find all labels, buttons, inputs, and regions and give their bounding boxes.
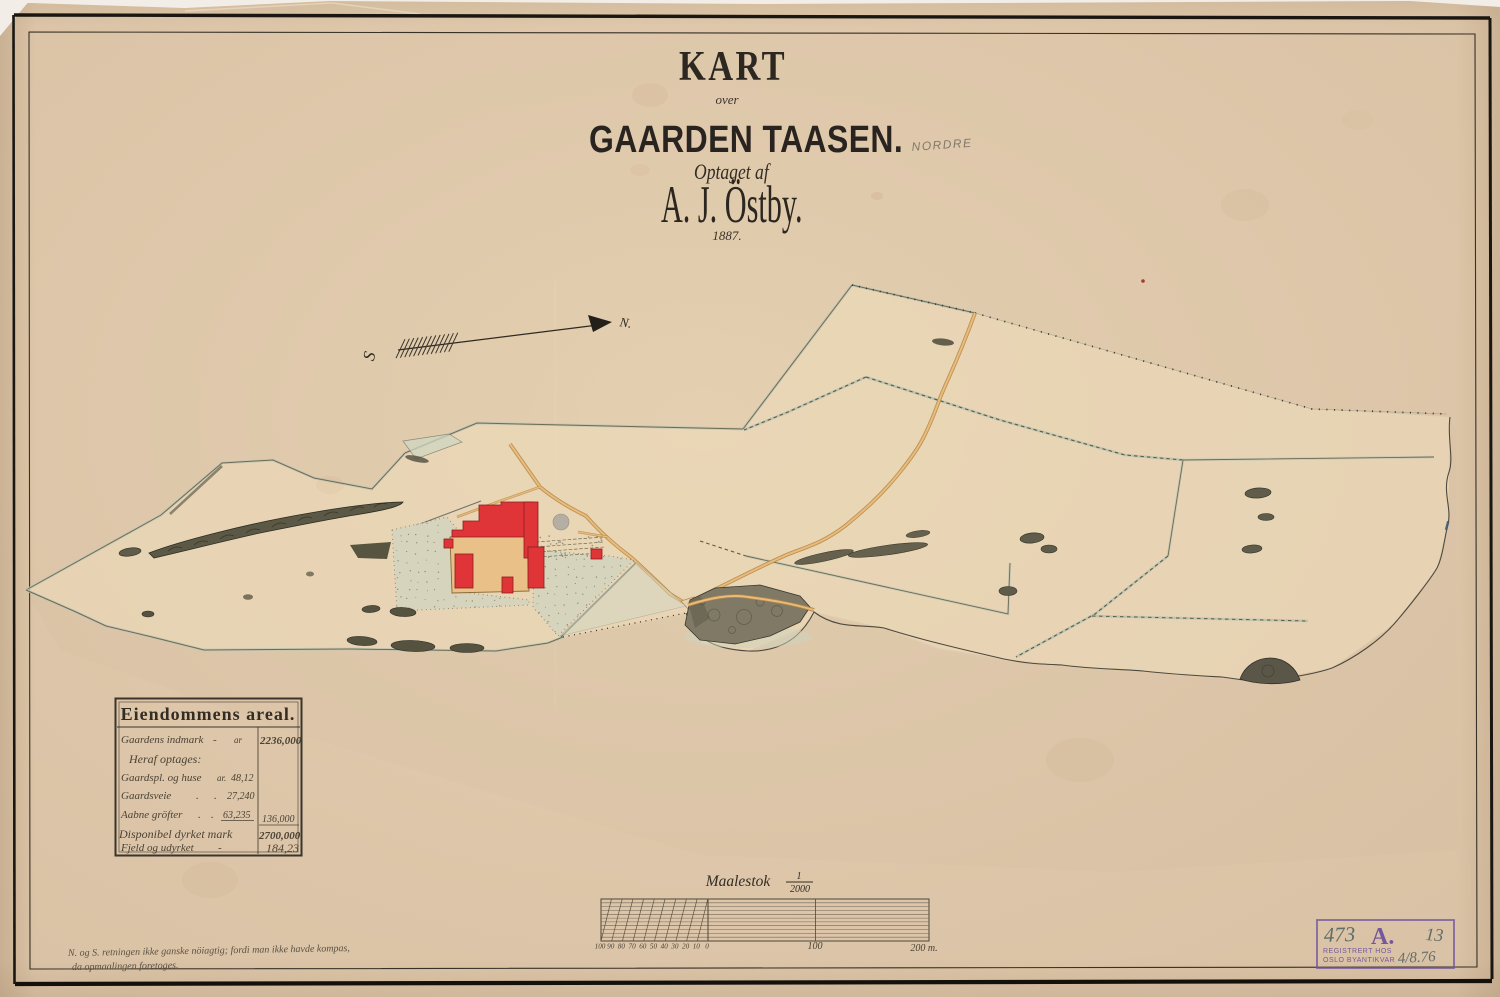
svg-text:over: over <box>715 92 739 107</box>
svg-text:1887.: 1887. <box>712 228 741 243</box>
svg-text:KART: KART <box>679 44 787 90</box>
svg-text:90: 90 <box>607 943 615 951</box>
svg-text:A. J. Östby.: A. J. Östby. <box>661 177 803 235</box>
svg-text:1: 1 <box>797 871 802 882</box>
svg-text:2000: 2000 <box>790 884 810 895</box>
svg-text:0: 0 <box>705 943 709 951</box>
svg-text:10: 10 <box>693 943 701 951</box>
svg-text:200 m.: 200 m. <box>910 943 937 954</box>
svg-text:27,240: 27,240 <box>227 791 255 802</box>
svg-text:Gaardsveie: Gaardsveie <box>121 790 171 802</box>
svg-text:Disponibel dyrket mark: Disponibel dyrket mark <box>118 827 233 841</box>
svg-text:ar.: ar. <box>217 773 226 783</box>
svg-text:.: . <box>211 809 214 821</box>
svg-text:184,23: 184,23 <box>266 841 299 855</box>
svg-text:40: 40 <box>661 943 669 951</box>
svg-text:20: 20 <box>682 943 690 951</box>
svg-text:Heraf optages:: Heraf optages: <box>128 752 201 766</box>
svg-text:A.: A. <box>1371 924 1394 950</box>
svg-text:Gaardspl. og huse: Gaardspl. og huse <box>121 772 202 784</box>
svg-text:Maalestok: Maalestok <box>705 873 772 890</box>
svg-text:Gaardens indmark: Gaardens indmark <box>121 734 205 746</box>
svg-text:63,235: 63,235 <box>223 810 251 821</box>
svg-text:Eiendommens areal.: Eiendommens areal. <box>121 704 296 724</box>
svg-text:136,000: 136,000 <box>262 814 295 825</box>
svg-text:100: 100 <box>808 941 823 952</box>
svg-text:GAARDEN TAASEN.: GAARDEN TAASEN. <box>589 118 903 160</box>
svg-text:ar: ar <box>234 735 243 745</box>
svg-text:4/8.76: 4/8.76 <box>1397 949 1436 967</box>
svg-text:473: 473 <box>1323 922 1355 947</box>
svg-text:N.: N. <box>618 314 633 331</box>
svg-text:80: 80 <box>618 943 626 951</box>
svg-text:.: . <box>196 790 199 802</box>
svg-text:13: 13 <box>1425 924 1444 945</box>
svg-text:100: 100 <box>595 943 606 951</box>
svg-text:30: 30 <box>670 943 679 951</box>
svg-text:2236,000: 2236,000 <box>259 735 302 747</box>
svg-text:60: 60 <box>639 943 647 951</box>
svg-text:da opmaalingen foretoges.: da opmaalingen foretoges. <box>72 960 179 973</box>
svg-text:Aabne gröfter: Aabne gröfter <box>120 809 183 821</box>
svg-text:50: 50 <box>650 943 658 951</box>
svg-text:OSLO BYANTIKVAR: OSLO BYANTIKVAR <box>1323 957 1395 964</box>
svg-text:-: - <box>213 734 217 746</box>
svg-text:.: . <box>214 790 217 802</box>
svg-text:48,12: 48,12 <box>231 773 254 784</box>
svg-text:70: 70 <box>629 943 637 951</box>
svg-text:-: - <box>218 842 222 854</box>
svg-text:.: . <box>198 809 201 821</box>
svg-text:REGISTRERT HOS: REGISTRERT HOS <box>1323 948 1392 955</box>
svg-text:Fjeld og udyrket: Fjeld og udyrket <box>120 842 195 854</box>
